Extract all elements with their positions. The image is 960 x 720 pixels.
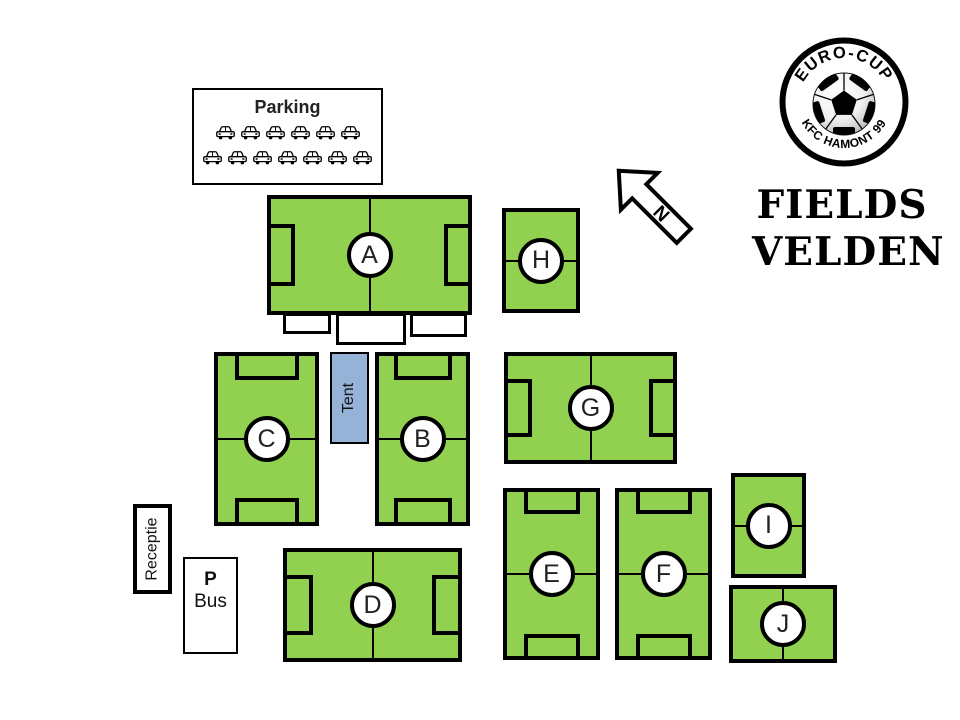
field-label: J [777, 610, 790, 639]
dugout-box-left [283, 313, 331, 334]
field-f: F [615, 488, 712, 660]
field-label: G [581, 394, 600, 423]
field-label-circle: D [350, 582, 396, 628]
reception: Receptie [133, 504, 172, 594]
field-label-circle: A [347, 232, 393, 278]
field-label-circle: H [518, 238, 564, 284]
car-icon [352, 150, 373, 165]
penalty-box [444, 224, 468, 286]
penalty-box [508, 379, 532, 437]
map-title: FIELDS VELDEN [752, 182, 932, 276]
field-label: E [543, 560, 560, 589]
car-icon [227, 150, 248, 165]
field-label: F [656, 560, 671, 589]
penalty-box [649, 379, 673, 437]
field-g: G [504, 352, 677, 464]
car-icon [215, 125, 236, 140]
car-icon [315, 125, 336, 140]
dugout-box-right [410, 313, 467, 337]
car-icon [302, 150, 323, 165]
penalty-box [432, 575, 458, 635]
reception-label: Receptie [144, 517, 162, 580]
penalty-box [235, 498, 299, 522]
title-line-fields: FIELDS [752, 182, 932, 229]
field-b: B [375, 352, 470, 526]
title-line-velden: VELDEN [752, 229, 932, 276]
penalty-box [394, 356, 452, 380]
car-icon [290, 125, 311, 140]
car-icon [340, 125, 361, 140]
club-logo: EURO-CUP KFC HAMONT 99 [778, 36, 910, 168]
field-d: D [283, 548, 462, 662]
field-label-circle: G [568, 385, 614, 431]
field-h: H [502, 208, 580, 313]
field-label-circle: B [400, 416, 446, 462]
field-i: I [731, 473, 806, 578]
field-j: J [729, 585, 837, 663]
car-icon [277, 150, 298, 165]
car-icon [252, 150, 273, 165]
field-label-circle: F [641, 551, 687, 597]
field-a: A [267, 195, 472, 315]
car-icon [240, 125, 261, 140]
field-label-circle: C [244, 416, 290, 462]
penalty-box [287, 575, 313, 635]
penalty-box [524, 634, 580, 656]
bus-parking-box: P Bus [183, 557, 238, 654]
parking-car-row-1 [194, 125, 381, 140]
penalty-box [524, 492, 580, 514]
bus-parking-p-label: P [185, 569, 236, 591]
north-arrow-icon: N [600, 158, 706, 254]
penalty-box [271, 224, 295, 286]
field-label: H [532, 246, 550, 275]
penalty-box [636, 492, 692, 514]
parking-label: Parking [194, 97, 381, 118]
field-label: D [363, 591, 381, 620]
field-label: C [257, 425, 275, 454]
field-label-circle: J [760, 601, 806, 647]
field-label: B [414, 425, 431, 454]
penalty-box [235, 356, 299, 380]
dugout-box-middle [336, 313, 406, 345]
field-label-circle: E [529, 551, 575, 597]
car-icon [327, 150, 348, 165]
car-icon [202, 150, 223, 165]
penalty-box [394, 498, 452, 522]
field-e: E [503, 488, 600, 660]
field-label: A [361, 241, 378, 270]
parking-car-row-2 [194, 150, 381, 165]
field-c: C [214, 352, 319, 526]
penalty-box [636, 634, 692, 656]
parking-area: Parking [192, 88, 383, 185]
field-label-circle: I [746, 503, 792, 549]
tent: Tent [330, 352, 369, 444]
field-label: I [765, 511, 772, 540]
tent-label: Tent [341, 383, 359, 413]
car-icon [265, 125, 286, 140]
bus-parking-bus-label: Bus [185, 591, 236, 613]
